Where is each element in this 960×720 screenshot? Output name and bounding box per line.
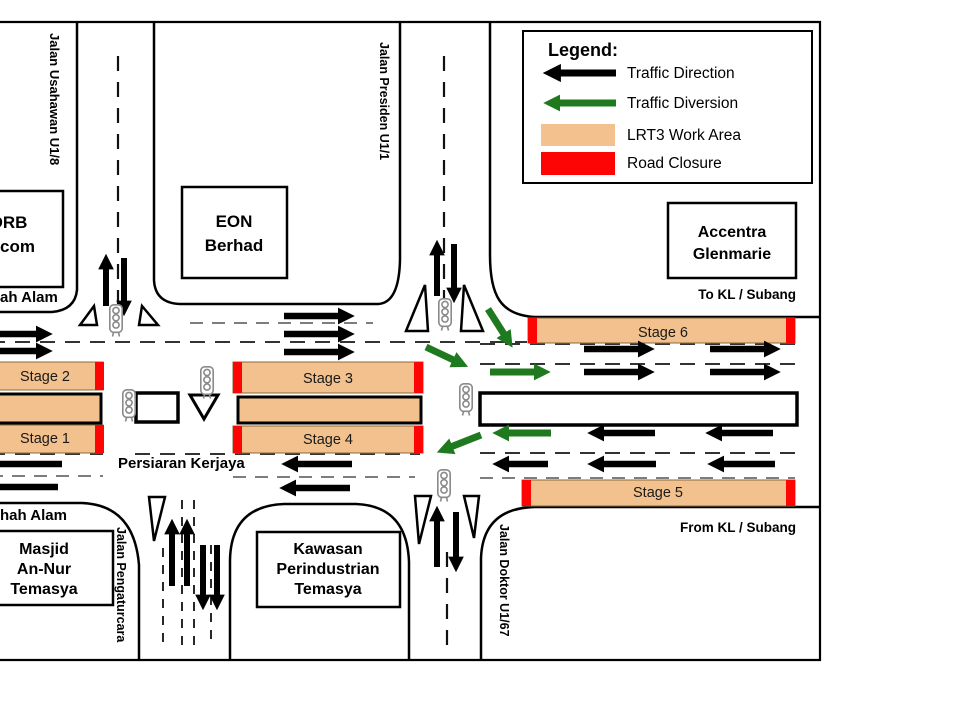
building-label: Temasya [294, 581, 361, 598]
median-island-west [0, 394, 101, 423]
traffic-diversion-diagram: Stage 2 Stage 1 Stage 3 Stage 4 Stage 6 … [0, 0, 960, 720]
building-label: Kawasan [293, 541, 362, 558]
diversion-arrow [443, 435, 481, 450]
building-eon-berhad [182, 187, 287, 278]
yield-island-triangle [80, 306, 97, 325]
building-label: Hicom [0, 237, 35, 256]
yield-island-triangle [149, 497, 165, 541]
yield-island-triangle [406, 285, 428, 331]
yield-island-triangle [415, 496, 431, 544]
direction-label-shah-alam-top: ah Alam [0, 289, 58, 306]
direction-label-to-kl-subang: To KL / Subang [698, 287, 796, 302]
median-box-small [136, 393, 178, 422]
traffic-light-icon [123, 390, 135, 422]
traffic-light-icon [438, 470, 450, 502]
stage-5-closure-left [522, 480, 531, 506]
yield-island-triangle [461, 285, 483, 331]
stage-5-label: Stage 5 [633, 485, 683, 501]
legend-item-traffic-diversion: Traffic Diversion [627, 95, 738, 112]
stage-6-closure-right [786, 318, 795, 343]
stage-3-closure-right [414, 362, 423, 393]
yield-island-triangle [464, 496, 479, 538]
lane-dash [0, 476, 795, 478]
legend-item-work-area: LRT3 Work Area [627, 127, 741, 144]
building-label: Accentra [698, 224, 767, 241]
building-label: Glenmarie [693, 246, 771, 263]
median-island-center [238, 397, 421, 423]
yield-island-triangle [139, 306, 158, 325]
stage-4-closure-left [233, 426, 242, 453]
direction-label-from-kl-subang: From KL / Subang [680, 520, 796, 535]
stage-6-closure-left [528, 318, 537, 343]
building-label: Temasya [10, 581, 77, 598]
traffic-light-icon [110, 305, 122, 337]
median-island-east [480, 393, 797, 425]
building-label: DRB [0, 213, 27, 232]
stage-2-label: Stage 2 [20, 369, 70, 385]
traffic-light-icon [201, 367, 213, 399]
legend-item-road-closure: Road Closure [627, 155, 722, 172]
building-label: EON [216, 212, 253, 231]
stage-1-label: Stage 1 [20, 431, 70, 447]
road-label-jalan-doktor: Jalan Doktor U1/67 [497, 524, 511, 637]
legend: Legend: Traffic Direction Traffic Divers… [523, 31, 812, 183]
building-label: An-Nur [17, 561, 71, 578]
road-label-jalan-presiden: Jalan Presiden U1/1 [377, 42, 391, 160]
diagram-svg: Stage 2 Stage 1 Stage 3 Stage 4 Stage 6 … [0, 0, 960, 720]
stage-3-label: Stage 3 [303, 371, 353, 387]
road-label-persiaran-kerjaya: Persiaran Kerjaya [118, 455, 245, 472]
building-label: Masjid [19, 541, 69, 558]
road-label-jalan-usahawan: Jalan Usahawan U1/8 [47, 33, 62, 165]
road-closure-swatch [541, 152, 615, 175]
stage-5-closure-right [786, 480, 795, 506]
stage-6-label: Stage 6 [638, 325, 688, 341]
stage-3-closure-left [233, 362, 242, 393]
work-area-swatch [541, 124, 615, 146]
stage-1-closure [95, 425, 104, 453]
stage-4-label: Stage 4 [303, 432, 353, 448]
diversion-arrow [488, 309, 509, 342]
median-islands [0, 393, 797, 425]
direction-label-shah-alam-bottom: hah Alam [0, 507, 67, 524]
stage-4-closure-right [414, 426, 423, 453]
stage-2-closure [95, 362, 104, 390]
road-label-jalan-pengaturcara: Jalan Pengaturcara [114, 527, 128, 643]
building-label: Perindustrian [276, 561, 379, 578]
building-label: Berhad [205, 236, 264, 255]
traffic-light-icon [460, 384, 472, 416]
diversion-arrow [426, 347, 462, 364]
traffic-light-icon [439, 299, 451, 331]
legend-title: Legend: [548, 40, 618, 60]
legend-item-traffic-direction: Traffic Direction [627, 65, 735, 82]
